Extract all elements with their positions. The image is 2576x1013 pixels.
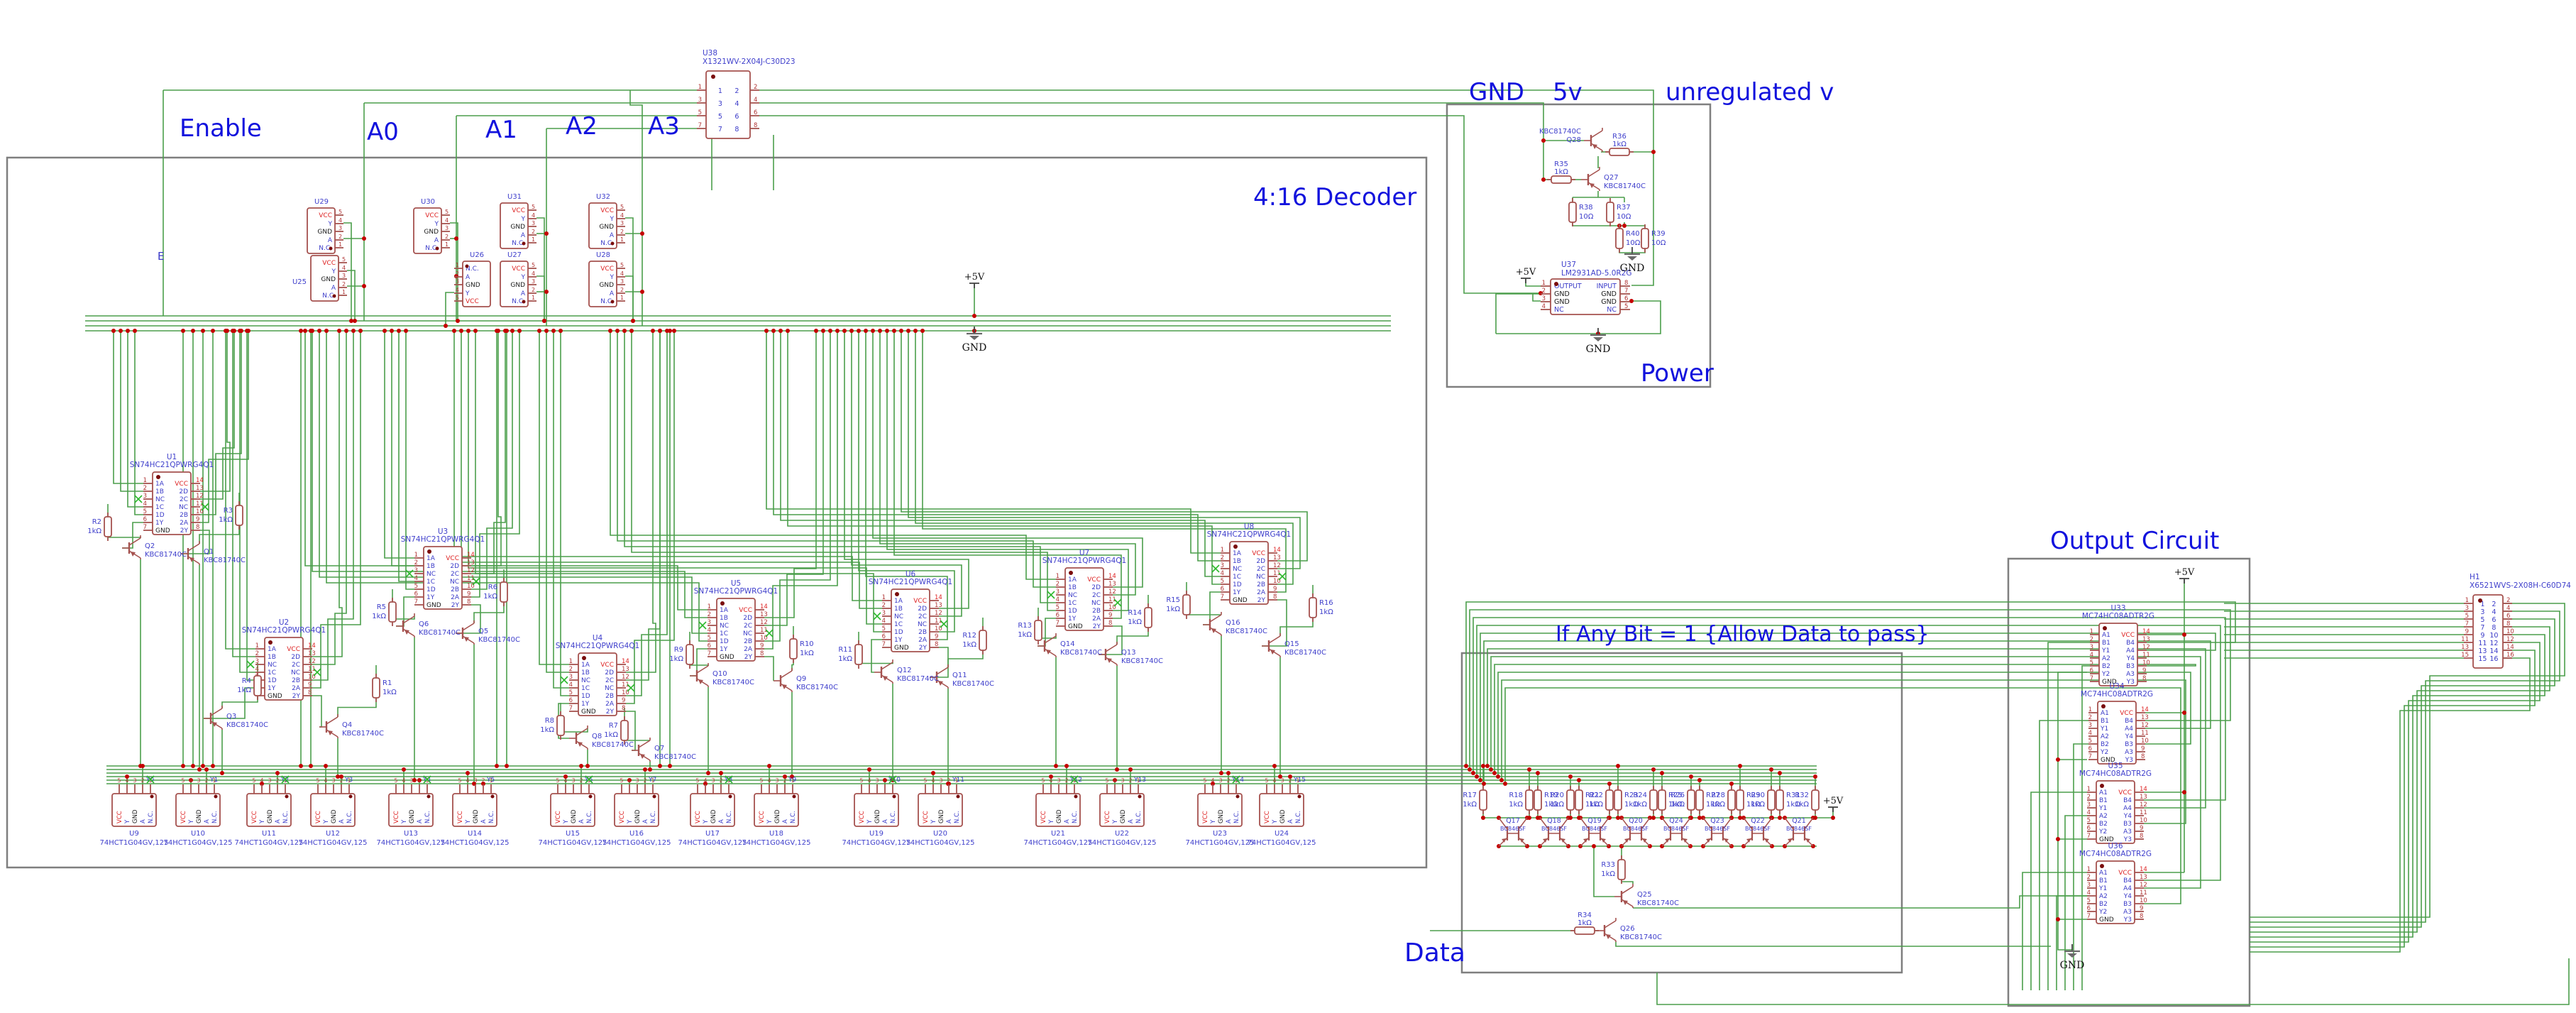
junction-dot — [1499, 778, 1504, 782]
text: 3 — [620, 278, 624, 285]
text: VCC — [457, 811, 464, 823]
transistor-value: KBC81740C — [654, 753, 696, 761]
res-value: 1kΩ — [838, 655, 852, 663]
inverter-value: 74HCT1G04GV,125 — [1185, 839, 1254, 847]
text: 5 — [342, 256, 346, 263]
text: 1 — [342, 289, 346, 295]
text: B1 — [2102, 640, 2110, 647]
junction-dot — [913, 329, 918, 333]
text: N.C. — [282, 811, 290, 823]
junction-dot — [495, 329, 499, 333]
text: 6 — [2506, 613, 2510, 620]
text: NC — [1233, 566, 1242, 573]
text: 9 — [2465, 628, 2469, 635]
wire — [937, 667, 948, 674]
junction-dot — [1115, 767, 1119, 772]
text: 4 — [620, 270, 624, 277]
res-value: 10Ω — [1651, 239, 1666, 247]
text: 8 — [2506, 620, 2510, 628]
wire — [1526, 278, 1541, 286]
text: 2D — [1256, 558, 1265, 565]
text: 1 — [2087, 786, 2091, 793]
text: 1 — [445, 241, 448, 248]
transistor-ref: Q27 — [1604, 174, 1619, 182]
text: 3 — [1281, 777, 1284, 784]
text: 5 — [718, 113, 722, 121]
text: GND — [196, 809, 203, 823]
wire — [222, 696, 258, 708]
inverter-value: 74HCT1G04GV,125 — [163, 839, 232, 847]
junction-dot — [1481, 816, 1485, 820]
text: 2 — [783, 777, 787, 784]
text: 6 — [569, 697, 573, 704]
junction-dot — [1064, 764, 1069, 768]
text: 4 — [882, 618, 886, 625]
text: 11 — [2478, 640, 2487, 647]
text: 2 — [1289, 777, 1292, 784]
junction-dot — [1813, 774, 1817, 779]
junction-dot — [1138, 795, 1142, 799]
text: 3 — [268, 777, 272, 784]
wire — [626, 331, 656, 672]
junction-dot — [771, 329, 776, 333]
res-value: 1kΩ — [1509, 801, 1523, 809]
component-body — [706, 71, 750, 138]
junction-dot — [466, 771, 470, 775]
res-ref: R37 — [1617, 204, 1631, 212]
text: 3 — [338, 225, 342, 231]
text: Y — [766, 819, 774, 824]
text: 6 — [2088, 745, 2092, 752]
wire — [454, 331, 882, 601]
transistor-value: KBC81740C — [478, 636, 520, 644]
dual-transistor-ref: Q21 — [1792, 817, 1806, 825]
text: 13 — [467, 559, 475, 566]
junction-dot — [1471, 771, 1475, 775]
inverter-ref: U10 — [191, 830, 205, 838]
component-body — [1569, 202, 1576, 222]
transistor-value: KBC81740C — [1226, 628, 1267, 635]
text: 4 — [569, 681, 573, 689]
text: 7 — [2087, 913, 2091, 920]
text: 2D — [1091, 584, 1101, 591]
text: 2 — [2090, 636, 2093, 643]
text: 1Y — [581, 701, 590, 708]
text: N.C. — [726, 811, 733, 823]
inverter-value: 74HCT1G04GV,125 — [376, 839, 445, 847]
text: GND — [1554, 290, 1570, 298]
text: N.C. — [148, 811, 155, 823]
text: 5 — [532, 262, 535, 268]
text: 12 — [2142, 644, 2150, 651]
text: A4 — [2125, 725, 2133, 733]
junction-dot — [658, 764, 662, 768]
text: B2 — [2101, 741, 2109, 748]
text: 1 — [698, 84, 702, 91]
text: 2Y — [606, 708, 615, 716]
text: 2C — [605, 677, 614, 684]
text: 11 — [2142, 652, 2150, 659]
text: VCC — [913, 598, 927, 605]
text: 3 — [2465, 605, 2469, 612]
junction-dot — [1489, 767, 1493, 772]
res-ref: R26 — [1670, 792, 1685, 799]
component-body — [104, 517, 111, 537]
junction-dot — [1568, 774, 1573, 779]
label-a3: A3 — [648, 112, 680, 141]
text: 13 — [1108, 581, 1116, 588]
label-enable: Enable — [180, 114, 262, 143]
text: 4 — [2090, 652, 2093, 659]
junction-dot — [119, 329, 123, 333]
res-ref: R11 — [838, 646, 852, 654]
text: NC — [918, 621, 927, 628]
text: GND — [894, 645, 909, 652]
junction-dot — [309, 329, 313, 333]
text: A — [434, 237, 439, 244]
wire — [1106, 645, 1117, 652]
junction-dot — [2182, 633, 2186, 637]
dual-transistor-ref: Q22 — [1751, 817, 1765, 825]
wire — [1203, 592, 1221, 625]
text: A — [466, 274, 470, 281]
junction-dot — [706, 771, 710, 775]
res-ref: R10 — [800, 640, 814, 648]
wire — [859, 662, 893, 664]
junction-dot — [362, 236, 366, 241]
text: VCC — [1104, 811, 1111, 823]
text: 2 — [340, 777, 343, 784]
wire — [781, 671, 792, 678]
junction-dot — [1738, 764, 1742, 768]
text: VCC — [600, 207, 614, 214]
text: B1 — [2101, 718, 2109, 725]
inverter-value: 74HCT1G04GV,125 — [99, 839, 168, 847]
text: 4 — [532, 212, 535, 219]
text: 2 — [569, 666, 573, 673]
text: B4 — [2123, 797, 2132, 804]
junction-dot — [589, 795, 593, 799]
wire — [766, 331, 1221, 553]
text: 3 — [2088, 722, 2092, 729]
text: 8 — [2142, 675, 2146, 682]
power-box — [1447, 104, 1710, 387]
junction-dot — [672, 329, 676, 333]
wire — [463, 623, 474, 630]
text: 14 — [622, 658, 629, 665]
text: 2 — [644, 777, 647, 784]
junction-dot — [611, 300, 615, 304]
text: 4 — [143, 500, 147, 508]
junction-dot — [711, 75, 715, 79]
text: 1 — [620, 236, 624, 243]
junction-dot — [324, 329, 329, 333]
junction-dot — [551, 329, 556, 333]
text: 3 — [1056, 588, 1059, 596]
text: 6 — [2090, 667, 2093, 674]
wire — [240, 331, 255, 672]
text: 8 — [935, 641, 938, 648]
junction-dot — [1778, 771, 1782, 775]
dual-transistor-value: BC846SF — [1705, 826, 1730, 832]
text: VCC — [251, 811, 258, 823]
res-value: 1kΩ — [483, 593, 497, 601]
junction-dot — [285, 795, 289, 799]
text: GND — [1233, 597, 1248, 604]
junction-dot — [835, 329, 840, 333]
text: 3 — [255, 658, 259, 665]
text: 1Y — [1068, 615, 1077, 623]
wire — [764, 657, 774, 681]
text: VCC — [1040, 811, 1047, 823]
text: N.C. — [424, 811, 431, 823]
text: 2 — [456, 270, 459, 277]
junction-dot — [1577, 778, 1581, 782]
component-body — [1736, 790, 1744, 810]
component-body — [1551, 176, 1571, 183]
text: 2A — [180, 520, 189, 527]
text: 5 — [698, 109, 702, 116]
junction-dot — [2056, 917, 2060, 921]
text: N.C. — [954, 811, 961, 823]
text: 4 — [324, 777, 328, 784]
text: 12 — [935, 610, 942, 617]
res-ref: R18 — [1509, 792, 1523, 799]
wire — [2250, 619, 2555, 927]
junction-dot — [957, 795, 960, 799]
component-body — [1534, 790, 1541, 810]
text: Y2 — [2098, 828, 2107, 836]
wire — [536, 276, 544, 321]
text: 16 — [2506, 652, 2514, 659]
text: 7 — [2090, 675, 2093, 682]
text: 12 — [2489, 640, 2498, 647]
junction-dot — [2182, 790, 2186, 794]
text: A2 — [2099, 813, 2108, 820]
wire — [546, 331, 569, 672]
net-label-enable: E — [158, 250, 164, 263]
text: 1C — [1068, 600, 1077, 607]
wire — [2250, 635, 2545, 937]
junction-dot — [931, 771, 935, 775]
text: Y — [610, 216, 615, 223]
text: 1C — [426, 579, 435, 586]
text: 2 — [734, 87, 739, 95]
junction-dot — [615, 329, 620, 333]
inverter-ref: U22 — [1115, 830, 1129, 838]
res-ref: R9 — [674, 646, 683, 654]
text: 2 — [2088, 714, 2092, 721]
inverter-value: 74HCT1G04GV,125 — [602, 839, 671, 847]
text: NC — [1256, 574, 1265, 581]
text: 9 — [622, 697, 625, 704]
text: 1 — [718, 87, 722, 95]
text: 6 — [2087, 905, 2091, 912]
text: 1A — [1233, 550, 1242, 557]
text: GND — [155, 527, 170, 535]
text: VCC — [116, 811, 123, 823]
transistor-value: KBC81740C — [1284, 649, 1326, 657]
junction-dot — [1831, 816, 1835, 820]
label-5v: 5v — [1553, 78, 1583, 106]
text: 8 — [1273, 593, 1277, 601]
text: VCC — [287, 646, 300, 653]
text: 2D — [605, 669, 614, 677]
junction-dot — [351, 329, 356, 333]
junction-dot — [899, 329, 903, 333]
text: 3 — [1057, 777, 1061, 784]
wire — [2250, 642, 2540, 942]
component-body — [1696, 790, 1703, 810]
inverter-ref: U13 — [404, 830, 418, 838]
text: 3 — [1542, 295, 1546, 302]
text: NC — [179, 504, 188, 511]
text: Y — [627, 819, 634, 824]
text: 5 — [414, 583, 418, 590]
junction-dot — [1481, 764, 1485, 768]
component-body — [1650, 790, 1657, 810]
text: 14 — [935, 594, 942, 601]
text: 2 — [2506, 597, 2510, 604]
text: B4 — [2123, 877, 2132, 885]
text: GND — [938, 809, 945, 823]
inverter-value: 74HCT1G04GV,125 — [842, 839, 910, 847]
text: 4 — [708, 627, 711, 634]
res-value: 10Ω — [1626, 239, 1641, 247]
text: 9 — [1273, 586, 1277, 593]
ic-value: SN74HC21QPWRG4Q1 — [869, 578, 953, 586]
junction-dot — [2103, 626, 2107, 630]
text: 14 — [2506, 644, 2514, 651]
text: 1A — [894, 598, 903, 605]
junction-dot — [2056, 837, 2060, 841]
ic-value: SN74HC21QPWRG4Q1 — [401, 535, 485, 544]
text: 4 — [456, 287, 459, 293]
gnd-symbol — [969, 336, 979, 340]
text: 1 — [1542, 280, 1546, 287]
transistor-ref: Q28 — [1566, 136, 1581, 144]
text: 2B — [605, 693, 614, 700]
inverter-ref: U23 — [1213, 830, 1227, 838]
text: 3 — [2480, 608, 2484, 616]
text: 2C — [1092, 592, 1101, 599]
wire — [326, 717, 338, 724]
text: 1 — [414, 552, 418, 559]
dual-transistor-value: BC846SF — [1500, 826, 1526, 832]
dual-transistor-ref: Q17 — [1506, 817, 1520, 825]
gate-ref: U31 — [507, 193, 522, 201]
net-label: Y9 — [788, 777, 796, 784]
junction-dot — [333, 295, 336, 298]
text: 4 — [620, 212, 624, 219]
text: 2A — [451, 594, 460, 601]
res-ref: R28 — [1711, 792, 1725, 799]
text: VCC — [1087, 576, 1101, 584]
wire — [233, 331, 255, 657]
text: 1C — [581, 685, 590, 692]
component-body — [790, 639, 797, 659]
wire — [475, 331, 882, 632]
text: 3 — [620, 220, 624, 226]
text: Y1 — [2098, 805, 2107, 812]
junction-dot — [275, 771, 280, 775]
text: 4 — [754, 97, 757, 104]
text: A — [338, 819, 346, 823]
ic-value: MC74HC08ADTR2G — [2082, 612, 2154, 620]
text: NC — [291, 669, 300, 677]
text: GND — [473, 809, 480, 823]
text: 1 — [456, 262, 459, 268]
junction-dot — [444, 324, 448, 328]
text: Y — [1210, 819, 1217, 824]
transistor-value: KBC81740C — [897, 675, 939, 683]
text: 2A — [918, 637, 928, 644]
label-gnd: GND — [1469, 78, 1524, 106]
label-unregulated: unregulated v — [1666, 78, 1834, 106]
text: 2 — [884, 777, 887, 784]
text: Y4 — [2123, 893, 2132, 900]
inverter-ref: U21 — [1051, 830, 1065, 838]
wire — [2022, 872, 2087, 990]
label-a2: A2 — [566, 112, 598, 141]
text: 3 — [532, 220, 535, 226]
text: 8 — [308, 689, 312, 696]
label-ifanybit: If Any Bit = 1 {Allow Data to pass} — [1556, 622, 1930, 647]
text: N.C. — [790, 811, 797, 823]
text: 2B — [1257, 581, 1265, 588]
junction-dot — [1651, 150, 1656, 154]
text: A — [610, 290, 615, 297]
text: NC — [1554, 306, 1564, 314]
res-ref: R4 — [242, 677, 251, 685]
text: Y — [1112, 819, 1119, 824]
text: 7 — [1221, 593, 1224, 601]
text: Y — [331, 268, 336, 275]
res-value: 1kΩ — [87, 527, 101, 535]
text: 2B — [744, 638, 752, 645]
wire — [1622, 887, 1633, 894]
text: 4 — [2087, 889, 2091, 897]
res-ref: R14 — [1128, 609, 1142, 617]
junction-dot — [427, 795, 431, 799]
text: 8 — [196, 524, 199, 531]
res-ref: R5 — [377, 603, 386, 611]
text: 3 — [532, 278, 535, 285]
wire — [2058, 672, 2087, 951]
junction-dot — [892, 329, 896, 333]
junction-dot — [1769, 767, 1773, 772]
junction-dot — [436, 247, 439, 251]
junction-dot — [1298, 795, 1301, 799]
text: 1B — [894, 606, 903, 613]
wire — [2250, 658, 2530, 952]
text: 5 — [1042, 777, 1045, 784]
text: 5 — [253, 777, 256, 784]
junction-dot — [893, 795, 896, 799]
text: Y — [259, 819, 266, 824]
text: A2 — [2099, 893, 2108, 900]
text: N.C. — [1072, 811, 1079, 823]
text: N.C. — [1295, 811, 1302, 823]
text: Y3 — [2123, 916, 2132, 924]
text: 5 — [620, 777, 624, 784]
text: A2 — [2101, 733, 2109, 740]
text: 13 — [2478, 647, 2487, 655]
text: Y — [124, 819, 131, 824]
text: A — [1064, 819, 1071, 823]
component-body — [1526, 790, 1533, 810]
ic-value: MC74HC08ADTR2G — [2079, 770, 2152, 778]
